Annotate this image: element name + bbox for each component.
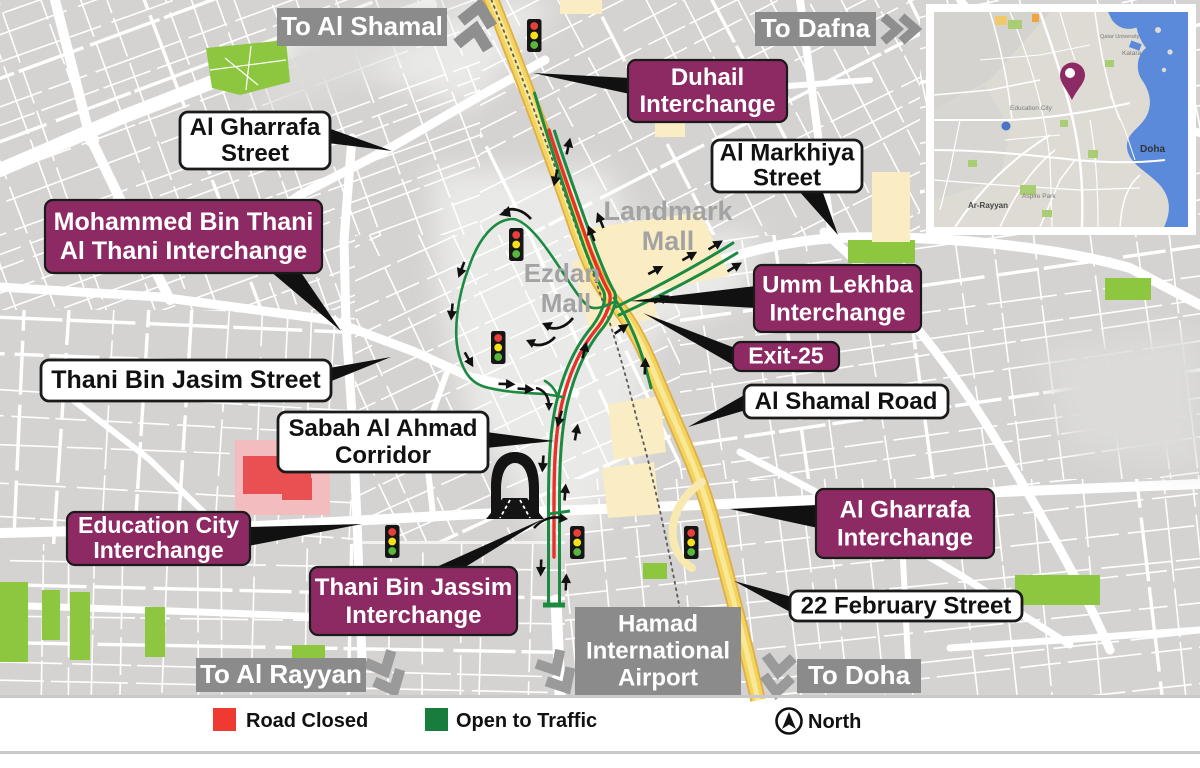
svg-text:Interchange: Interchange — [639, 91, 775, 118]
svg-text:Mall: Mall — [642, 226, 695, 256]
svg-text:Education City: Education City — [1010, 105, 1053, 112]
svg-text:Street: Street — [221, 140, 289, 167]
svg-text:Hamad: Hamad — [618, 611, 698, 638]
svg-text:Interchange: Interchange — [769, 299, 905, 326]
svg-text:Education City: Education City — [78, 512, 239, 538]
svg-text:Thani Bin Jasim Street: Thani Bin Jasim Street — [51, 366, 321, 394]
svg-text:Aspire Park: Aspire Park — [1022, 193, 1056, 200]
svg-text:Al Markhiya: Al Markhiya — [720, 140, 855, 167]
svg-text:Mall: Mall — [541, 288, 592, 318]
svg-text:Ezdan: Ezdan — [524, 258, 601, 288]
svg-text:22 February Street: 22 February Street — [801, 592, 1012, 619]
svg-text:To Dafna: To Dafna — [761, 13, 871, 43]
svg-text:Al Gharrafa: Al Gharrafa — [190, 114, 321, 141]
svg-text:Corridor: Corridor — [335, 442, 431, 469]
svg-text:Airport: Airport — [618, 665, 698, 692]
svg-text:Interchange: Interchange — [93, 537, 223, 563]
svg-text:To Al Rayyan: To Al Rayyan — [200, 659, 362, 689]
svg-text:Interchange: Interchange — [345, 602, 481, 629]
svg-text:To Al Shamal: To Al Shamal — [281, 11, 443, 41]
svg-text:To Doha: To Doha — [808, 660, 911, 690]
svg-text:Duhail: Duhail — [671, 64, 744, 91]
svg-text:Mohammed Bin Thani: Mohammed Bin Thani — [54, 208, 314, 236]
svg-text:Interchange: Interchange — [837, 524, 973, 551]
svg-text:Landmark: Landmark — [603, 196, 733, 226]
svg-text:Exit-25: Exit-25 — [748, 343, 824, 369]
svg-text:Al Shamal Road: Al Shamal Road — [755, 388, 938, 415]
svg-text:Street: Street — [753, 165, 821, 192]
svg-text:Al Thani Interchange: Al Thani Interchange — [60, 237, 307, 265]
svg-text:International: International — [586, 638, 730, 665]
svg-text:Ar-Rayyan: Ar-Rayyan — [968, 201, 1008, 210]
svg-text:Road Closed: Road Closed — [246, 710, 368, 732]
svg-text:Umm Lekhba: Umm Lekhba — [762, 271, 913, 298]
svg-text:Qatar University: Qatar University — [1100, 34, 1140, 40]
svg-text:Thani Bin Jassim: Thani Bin Jassim — [315, 574, 512, 601]
svg-text:Doha: Doha — [1140, 144, 1165, 155]
svg-text:Al Gharrafa: Al Gharrafa — [840, 496, 971, 523]
svg-text:Open to Traffic: Open to Traffic — [456, 710, 597, 732]
svg-text:North: North — [808, 711, 861, 733]
svg-text:Katara: Katara — [1122, 50, 1142, 57]
svg-text:Sabah Al Ahmad: Sabah Al Ahmad — [289, 415, 478, 442]
